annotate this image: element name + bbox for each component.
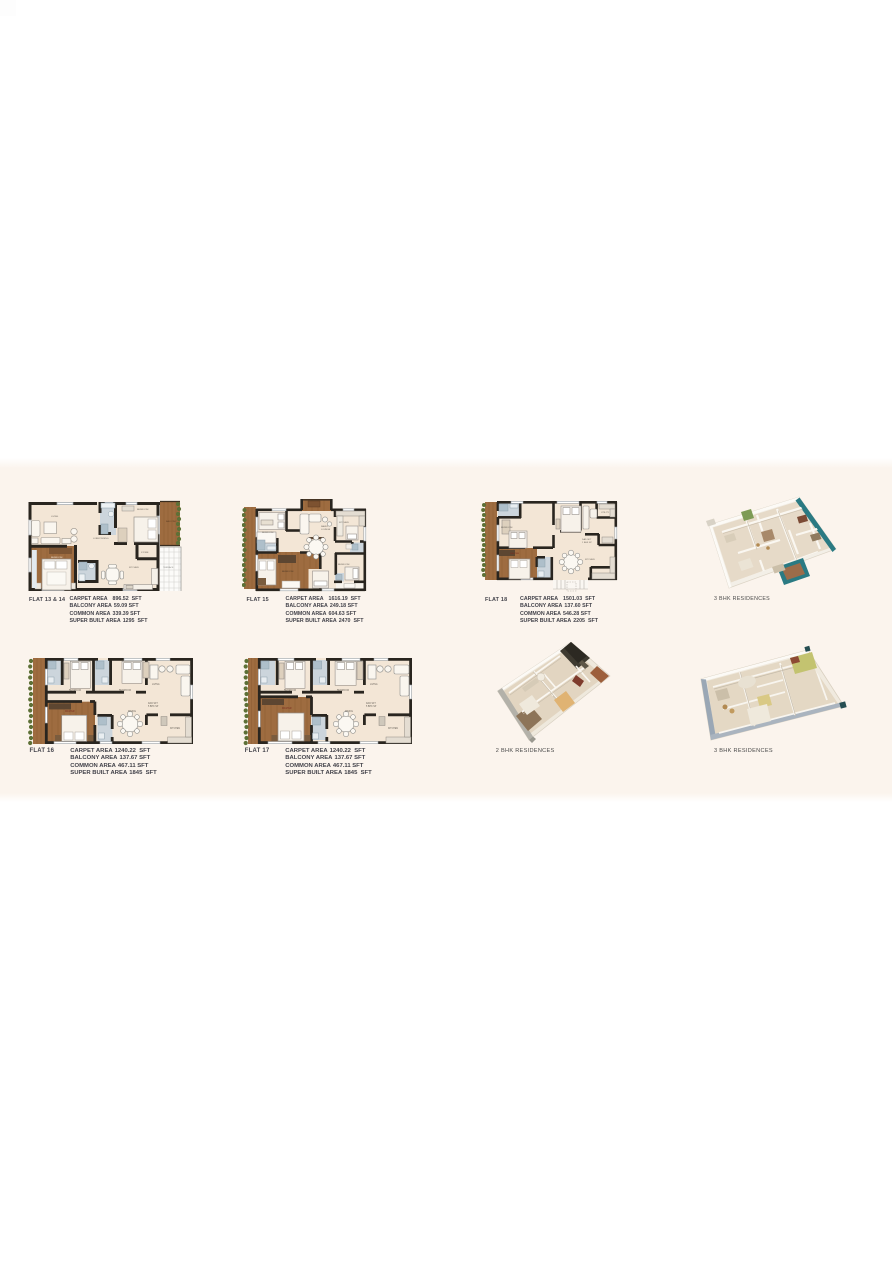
svg-text:BEDROOM: BEDROOM [262,532,273,534]
svg-text:MASTER: MASTER [510,552,520,555]
svg-text:DAD SFT: DAD SFT [582,538,592,541]
svg-text:BEDROOM: BEDROOM [51,557,62,559]
svg-text:BEDROOM: BEDROOM [119,690,131,692]
svg-text:FAMILY: FAMILY [321,525,329,528]
svg-text:KITCHEN: KITCHEN [129,567,139,569]
svg-text:DAD SFT: DAD SFT [366,702,376,705]
svg-text:KITCHEN: KITCHEN [339,522,349,524]
svg-text:DINING: DINING [128,711,136,713]
svg-text:MASTER: MASTER [65,710,75,713]
svg-text:KITCHEN: KITCHEN [585,559,595,561]
svg-text:DINING: DINING [345,711,353,713]
svg-text:BEDROOM: BEDROOM [337,690,349,692]
svg-text:BALCONY: BALCONY [166,520,177,523]
svg-text:BEDROOM: BEDROOM [69,690,81,692]
svg-text:LIVING: LIVING [370,684,378,686]
svg-text:KITCHEN: KITCHEN [170,728,180,730]
svg-text:1 BHK SP: 1 BHK SP [582,542,592,544]
svg-text:KITCHEN: KITCHEN [388,728,398,730]
svg-text:5 BHK SP: 5 BHK SP [148,706,159,708]
svg-text:LOUNGE: LOUNGE [321,529,331,531]
svg-text:MASTER: MASTER [282,707,292,710]
svg-text:DAD SFT: DAD SFT [148,702,158,705]
svg-text:LOBBY/DINING: LOBBY/DINING [93,538,109,540]
svg-text:LIVING: LIVING [152,684,160,686]
svg-text:BEDROOM: BEDROOM [137,509,148,511]
svg-text:BEDROOM: BEDROOM [338,564,349,566]
svg-text:5 BHK SP: 5 BHK SP [366,706,377,708]
svg-text:LIVING: LIVING [51,516,58,518]
svg-text:BEDROOM: BEDROOM [501,527,512,529]
svg-text:BEDROOM: BEDROOM [282,571,293,573]
svg-text:TERRACE: TERRACE [163,566,174,569]
svg-text:UTILITY: UTILITY [601,512,610,514]
svg-text:BEDROOM: BEDROOM [284,690,296,692]
svg-text:STORE: STORE [141,552,149,554]
